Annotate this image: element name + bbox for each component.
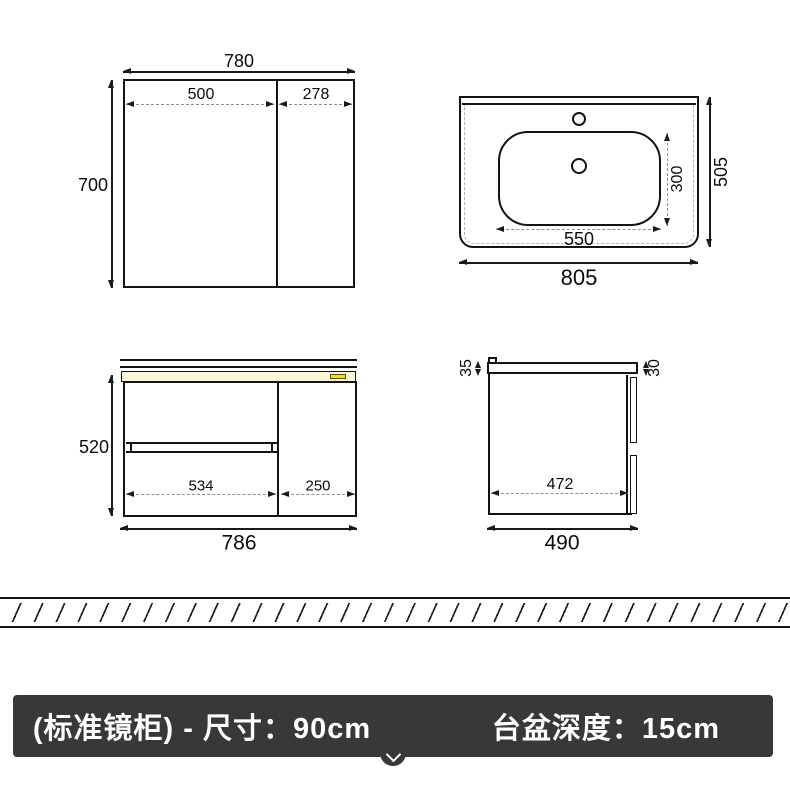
mirror-width-dimension-line — [123, 71, 355, 73]
mirror-width-label: 780 — [224, 52, 254, 70]
countertop-top-line — [120, 359, 357, 361]
drawer-gap-left-tick — [130, 444, 132, 451]
door-panel-lower-segment — [630, 455, 637, 514]
door-thickness-label: 30 — [647, 359, 663, 377]
cabinet-width-label: 786 — [221, 533, 256, 554]
cabinet-height-label: 520 — [79, 438, 109, 456]
door-panel-upper-segment — [630, 377, 637, 443]
mirror-right-door-dimension-line — [279, 104, 352, 105]
basin-width-dimension-line — [459, 262, 698, 264]
countertop-thickness-arrow-up — [475, 361, 481, 368]
bowl-depth-dimension-line — [667, 133, 668, 226]
drawer-gap-right-tick — [271, 444, 273, 451]
basin-width-label: 805 — [561, 267, 598, 289]
drain-hole-icon — [571, 158, 587, 174]
countertop-thickness-arrow-down — [475, 369, 481, 376]
mirror-height-label: 700 — [78, 176, 108, 194]
mirror-left-door-label: 500 — [188, 87, 215, 103]
cabinet-top-strip — [121, 371, 356, 382]
basin-depth-label: 505 — [712, 157, 730, 187]
footer-spec-bar: (标准镜柜) - 尺寸：90cm 台盆深度：15cm — [13, 695, 773, 757]
side-bottom-line — [488, 513, 632, 515]
chevron-down-icon — [386, 747, 402, 763]
faucet-hole-icon — [572, 112, 586, 126]
countertop-side-profile — [487, 362, 638, 374]
countertop-bottom-line — [120, 366, 357, 368]
cabinet-width-dimension-line — [120, 528, 357, 530]
mirror-cabinet-size-text: (标准镜柜) - 尺寸：90cm — [33, 705, 371, 747]
scroll-down-button[interactable] — [380, 740, 406, 766]
countertop-thickness-label: 35 — [459, 359, 475, 377]
door-width-label: 250 — [305, 479, 330, 494]
drawer-gap-band — [126, 442, 278, 453]
mirror-cabinet-outline — [123, 79, 355, 288]
cabinet-height-dimension-line — [111, 375, 113, 516]
bowl-width-label: 550 — [564, 230, 594, 248]
hatch-slashes-pattern — [0, 603, 790, 622]
mirror-right-door-label: 278 — [303, 87, 330, 103]
bathroom-vanity-dimension-diagram: 780 500 278 700 300 550 505 805 — [0, 0, 790, 800]
basin-bowl-outline — [498, 131, 661, 226]
drawers-width-label: 534 — [188, 479, 213, 494]
side-depth-label: 490 — [544, 533, 579, 554]
hatch-divider-band — [0, 597, 790, 628]
mirror-door-divider-line — [276, 81, 278, 286]
mirror-left-door-dimension-line — [126, 104, 274, 105]
bowl-depth-label: 300 — [670, 166, 686, 193]
basin-depth-text: 台盆深度：15cm — [492, 705, 720, 747]
inner-depth-dimension-line — [491, 493, 628, 494]
strip-yellow-chip — [330, 374, 346, 380]
mirror-height-dimension-line — [111, 80, 113, 288]
side-depth-dimension-line — [487, 528, 638, 530]
inner-depth-label: 472 — [547, 477, 574, 493]
